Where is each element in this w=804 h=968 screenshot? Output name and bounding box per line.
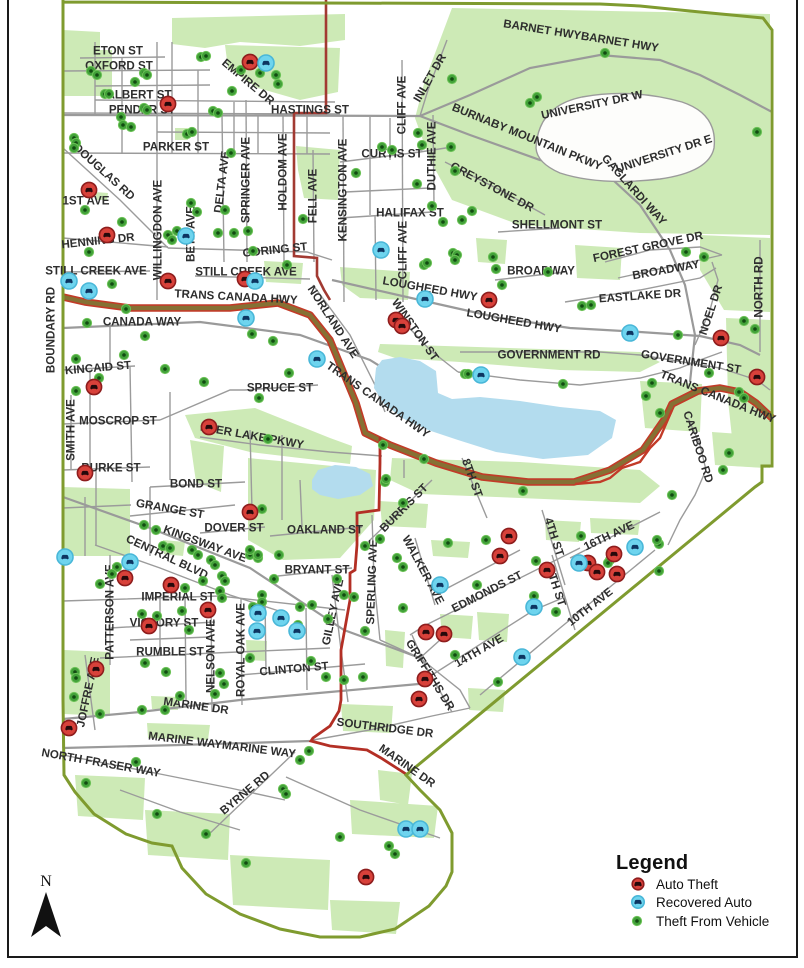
svg-text:PARKER ST: PARKER ST (143, 141, 209, 154)
svg-text:KENSINGTON AVE: KENSINGTON AVE (337, 138, 350, 241)
svg-text:Legend: Legend (616, 852, 688, 874)
svg-text:SMITH AVE: SMITH AVE (65, 399, 78, 461)
svg-text:ROYAL OAK AVE: ROYAL OAK AVE (235, 603, 248, 697)
svg-text:Recovered Auto: Recovered Auto (656, 895, 752, 910)
svg-text:BOND ST: BOND ST (170, 478, 222, 491)
svg-text:ETON ST: ETON ST (93, 45, 143, 58)
svg-text:NORTH RD: NORTH RD (753, 256, 766, 317)
svg-text:CLIFF AVE: CLIFF AVE (397, 220, 410, 279)
svg-text:SHELLMONT ST: SHELLMONT ST (512, 219, 602, 232)
svg-text:MOSCROP ST: MOSCROP ST (79, 415, 157, 428)
svg-text:BROADWAY: BROADWAY (507, 265, 575, 278)
svg-text:SPRINGER AVE: SPRINGER AVE (240, 137, 253, 224)
svg-text:BOUNDARY RD: BOUNDARY RD (45, 287, 58, 373)
svg-text:RUMBLE ST: RUMBLE ST (136, 646, 204, 659)
svg-text:BRYANT ST: BRYANT ST (285, 564, 350, 577)
svg-text:N: N (40, 873, 52, 890)
svg-text:Theft From Vehicle: Theft From Vehicle (656, 914, 769, 929)
svg-text:SPRUCE ST: SPRUCE ST (247, 382, 313, 395)
svg-text:NELSON AVE: NELSON AVE (205, 619, 218, 693)
svg-text:IMPERIAL ST: IMPERIAL ST (141, 591, 214, 604)
svg-text:CANADA WAY: CANADA WAY (103, 316, 182, 329)
svg-text:GOVERNMENT RD: GOVERNMENT RD (497, 349, 600, 362)
svg-text:OAKLAND ST: OAKLAND ST (287, 524, 363, 537)
svg-text:STILL CREEK AVE: STILL CREEK AVE (45, 265, 147, 278)
svg-text:CLIFF AVE: CLIFF AVE (396, 75, 409, 134)
svg-text:HOLDOM AVE: HOLDOM AVE (277, 133, 290, 211)
svg-text:WILLINGDON AVE: WILLINGDON AVE (152, 180, 165, 281)
svg-text:HASTINGS ST: HASTINGS ST (271, 104, 349, 117)
svg-text:FELL AVE: FELL AVE (307, 168, 320, 223)
svg-text:DOVER ST: DOVER ST (204, 522, 263, 535)
svg-text:DUTHIE AVE: DUTHIE AVE (426, 121, 439, 190)
svg-text:Auto Theft: Auto Theft (656, 877, 718, 892)
